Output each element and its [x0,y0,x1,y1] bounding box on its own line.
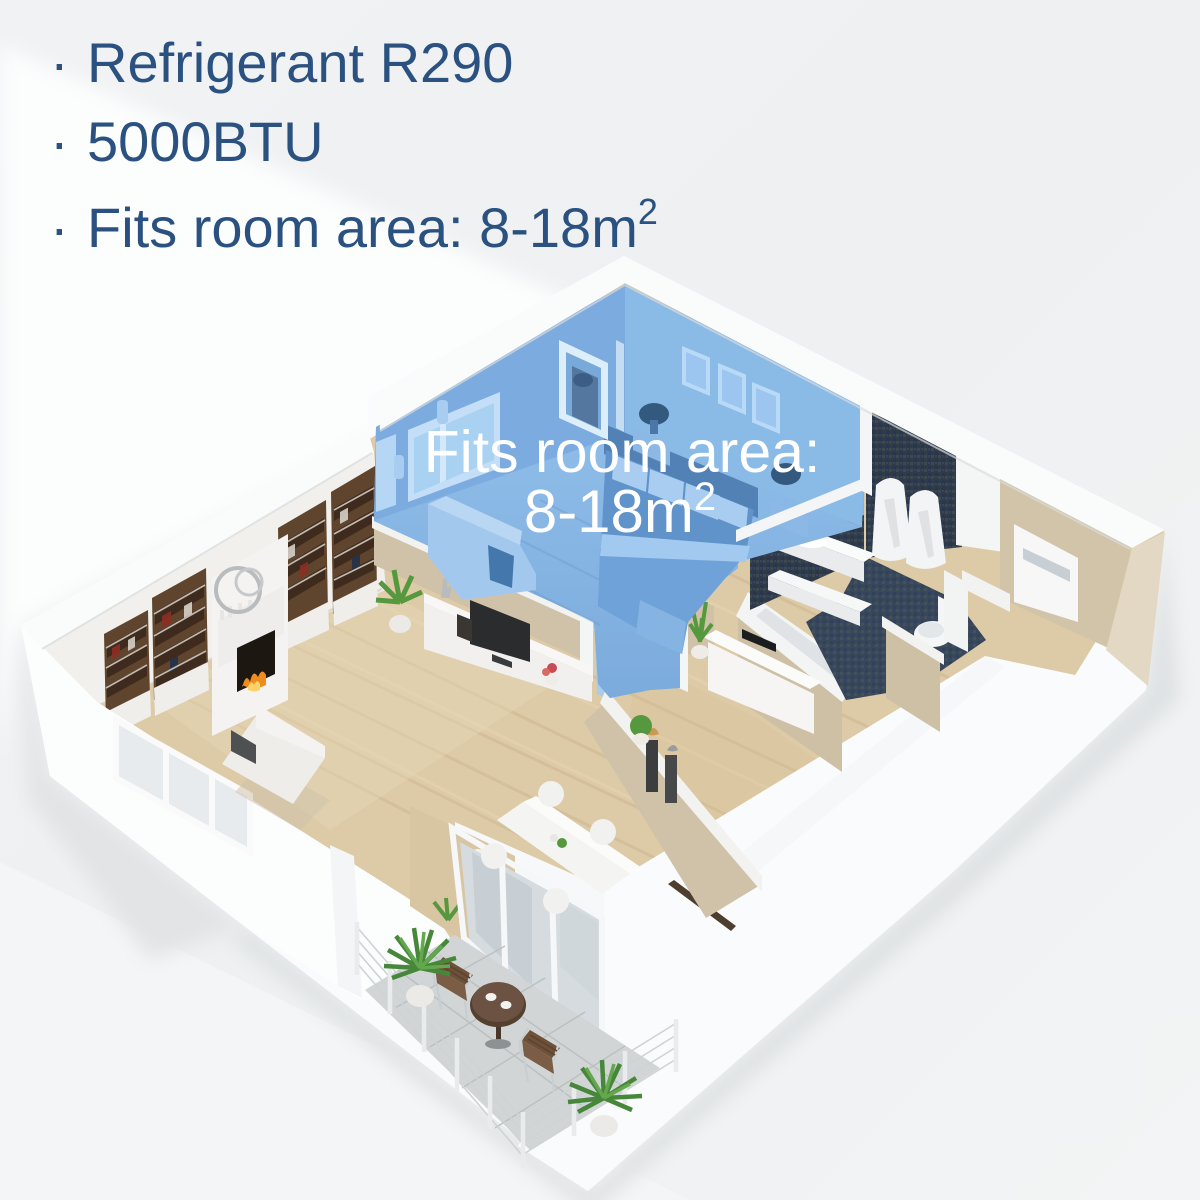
svg-text:Refrigerant R290: Refrigerant R290 [87,31,513,94]
svg-text:8-18m2: 8-18m2 [524,475,716,545]
svg-text:Fits room area: 8-18m2: Fits room area: 8-18m2 [87,191,658,259]
svg-text:·: · [50,196,69,259]
svg-text:·: · [50,31,69,94]
svg-text:Fits room area:: Fits room area: [424,419,821,485]
svg-text:5000BTU: 5000BTU [87,110,324,173]
svg-text:·: · [50,110,69,173]
